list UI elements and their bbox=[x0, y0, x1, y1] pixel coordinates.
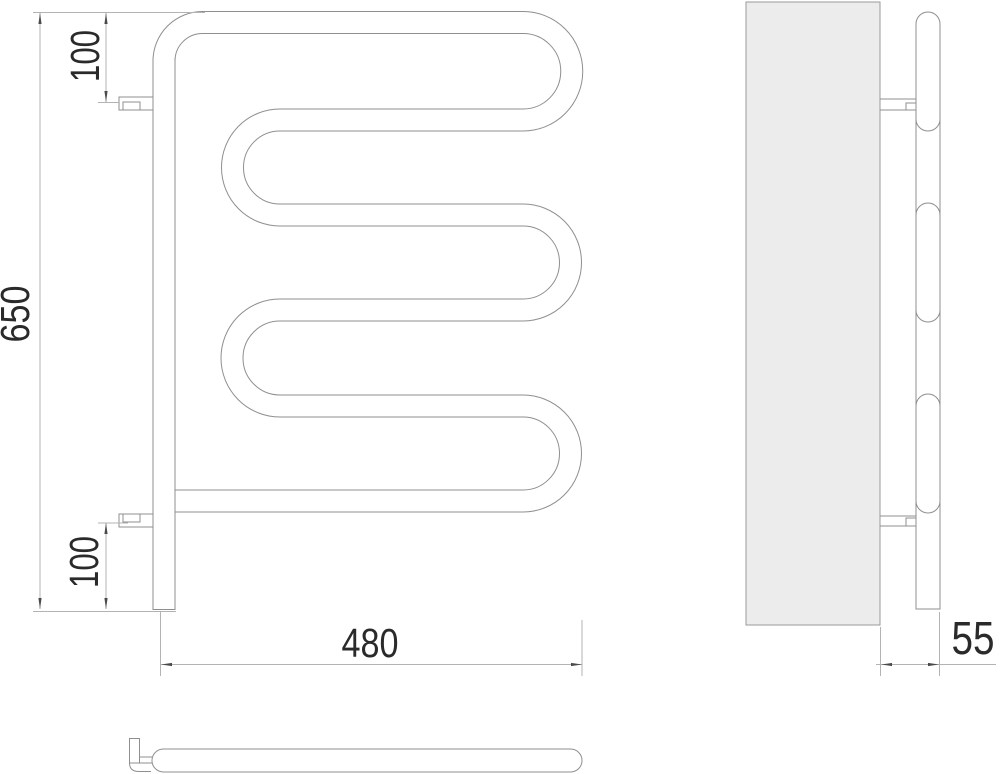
serpentine-tube bbox=[164, 23, 572, 610]
arrow-right bbox=[571, 663, 582, 666]
top-view-tube bbox=[152, 749, 582, 772]
serpentine-tube-bore bbox=[164, 23, 572, 610]
bracket-step bbox=[906, 103, 916, 110]
dim-depth-label: 55 bbox=[952, 612, 995, 664]
towel-rail-drawing: 650 100 100 480 bbox=[0, 0, 1000, 774]
side-view bbox=[746, 2, 940, 625]
arrow-up bbox=[104, 523, 107, 534]
dimension-bottom-offset: 100 bbox=[61, 523, 128, 609]
dim-width-label: 480 bbox=[342, 620, 399, 666]
bracket-step bbox=[906, 518, 916, 526]
bracket-arm bbox=[140, 757, 154, 763]
vertical-riser-tube bbox=[153, 58, 176, 610]
mounting-bracket-top-front bbox=[119, 97, 153, 110]
arrow-left bbox=[881, 663, 892, 666]
side-bracket-top bbox=[880, 99, 916, 110]
mounting-bracket-bottom-front bbox=[119, 514, 153, 527]
top-view-bracket bbox=[130, 739, 154, 772]
wall-panel bbox=[746, 2, 880, 625]
bracket-foot bbox=[130, 763, 152, 772]
dimension-depth: 55 bbox=[876, 612, 996, 676]
bracket-body bbox=[119, 514, 153, 527]
front-view bbox=[119, 23, 572, 610]
top-view bbox=[130, 739, 583, 773]
bracket-body bbox=[119, 97, 153, 110]
arrow-left bbox=[161, 663, 172, 666]
side-bracket-bottom bbox=[880, 516, 916, 526]
arrow-up bbox=[38, 13, 41, 24]
arrow-down bbox=[104, 598, 107, 609]
side-tube bbox=[916, 12, 940, 609]
arrow-up bbox=[104, 13, 107, 24]
arrow-down bbox=[104, 91, 107, 102]
dim-height-label: 650 bbox=[0, 286, 38, 343]
dimension-top-offset: 100 bbox=[62, 13, 119, 103]
side-tube-outline bbox=[916, 12, 940, 609]
arrow-down bbox=[38, 598, 41, 609]
dim-top-offset-label: 100 bbox=[62, 30, 108, 82]
dim-bottom-offset-label: 100 bbox=[61, 536, 107, 588]
bracket-flange bbox=[130, 739, 140, 764]
technical-drawing-page: 650 100 100 480 bbox=[0, 0, 1000, 774]
dimension-width: 480 bbox=[161, 612, 583, 676]
arrow-right bbox=[928, 663, 939, 666]
dimension-height: 650 bbox=[0, 13, 42, 609]
